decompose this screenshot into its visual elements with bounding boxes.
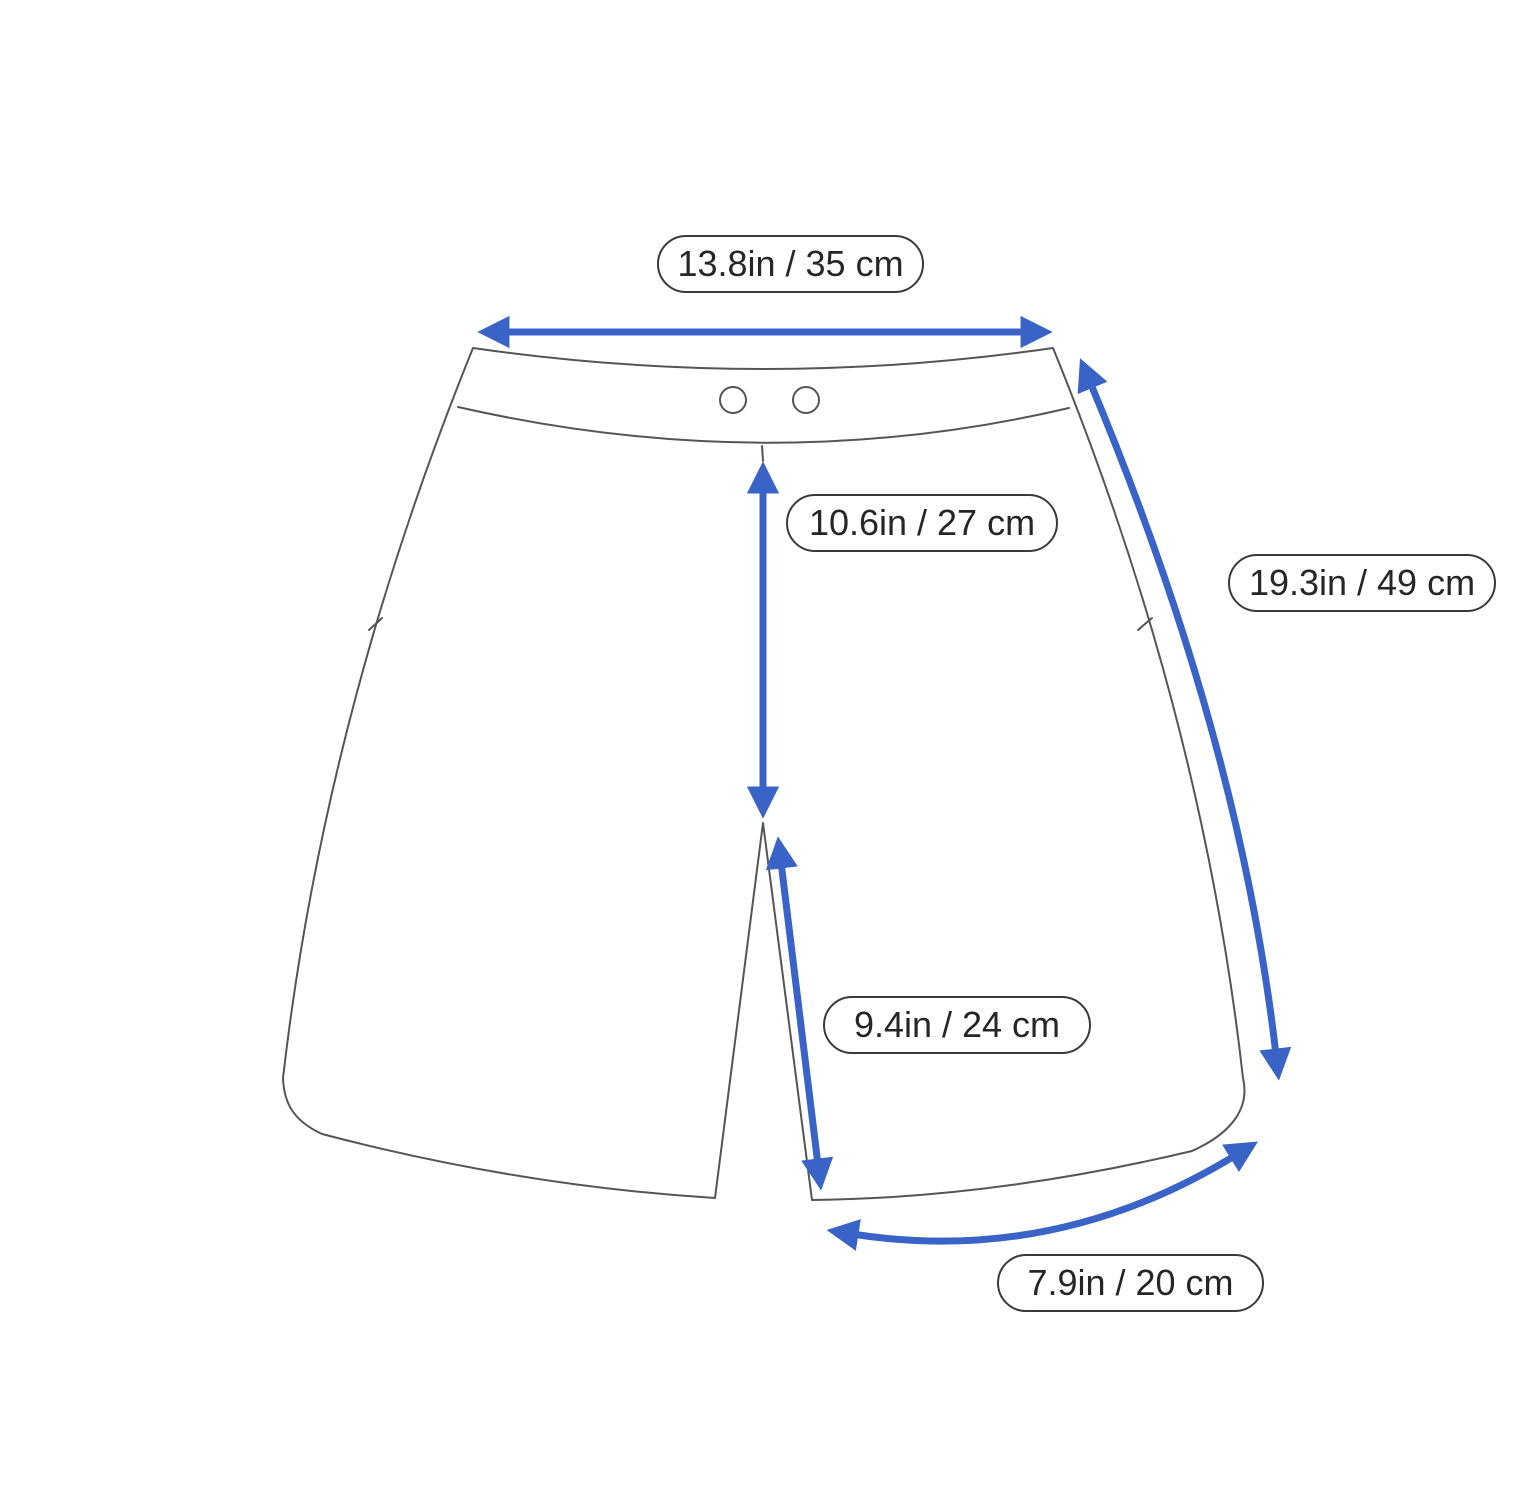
leg-opening-label: 7.9in / 20 cm [997, 1254, 1264, 1312]
shorts-measurement-diagram [0, 0, 1532, 1487]
inseam-label: 9.4in / 24 cm [823, 996, 1091, 1054]
waist-width-label: 13.8in / 35 cm [657, 235, 924, 293]
front-rise-label: 10.6in / 27 cm [786, 494, 1058, 552]
size-diagram-canvas: 13.8in / 35 cm 10.6in / 27 cm 19.3in / 4… [0, 0, 1532, 1487]
fly-notch [762, 446, 763, 461]
side-length-label: 19.3in / 49 cm [1228, 554, 1496, 612]
